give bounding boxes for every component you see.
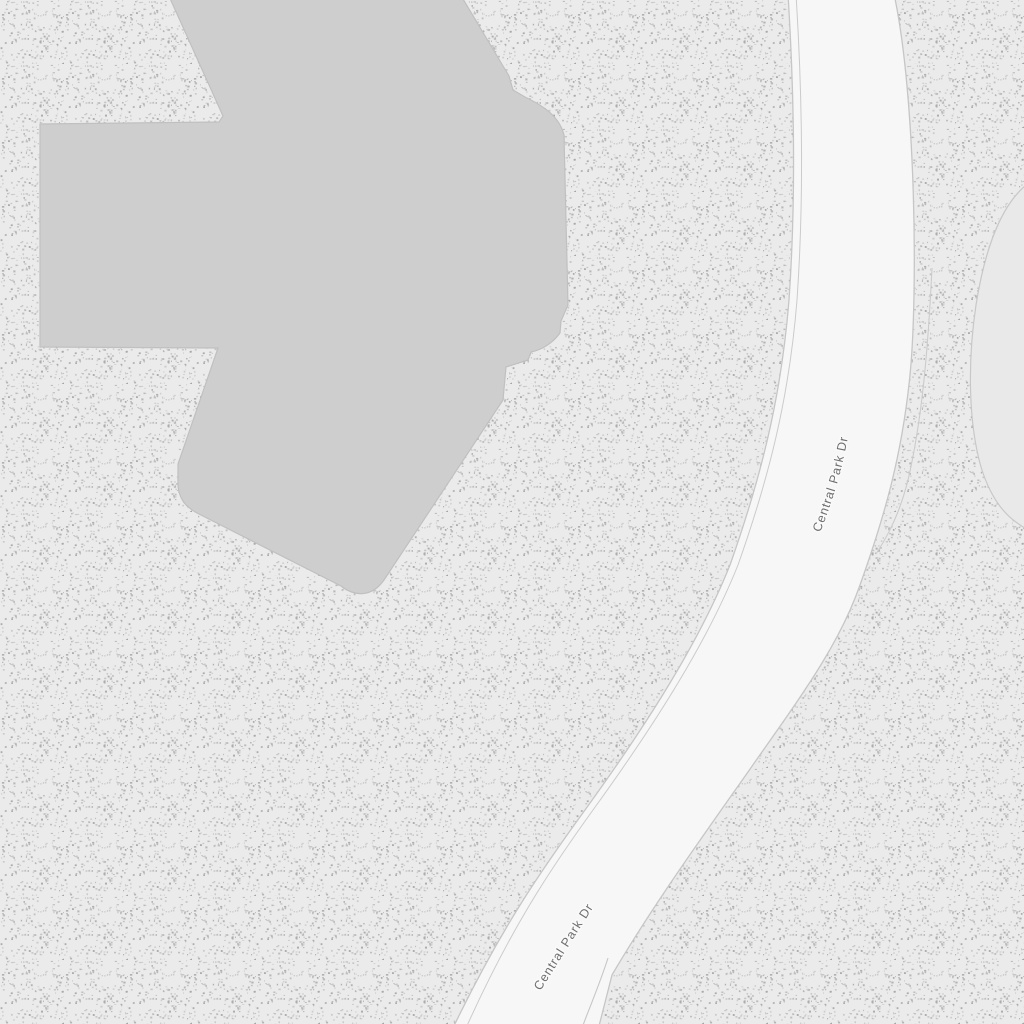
map-canvas[interactable]: Central Park Dr Central Park Dr [0,0,1024,1024]
map-viewport[interactable]: Central Park Dr Central Park Dr [0,0,1024,1024]
